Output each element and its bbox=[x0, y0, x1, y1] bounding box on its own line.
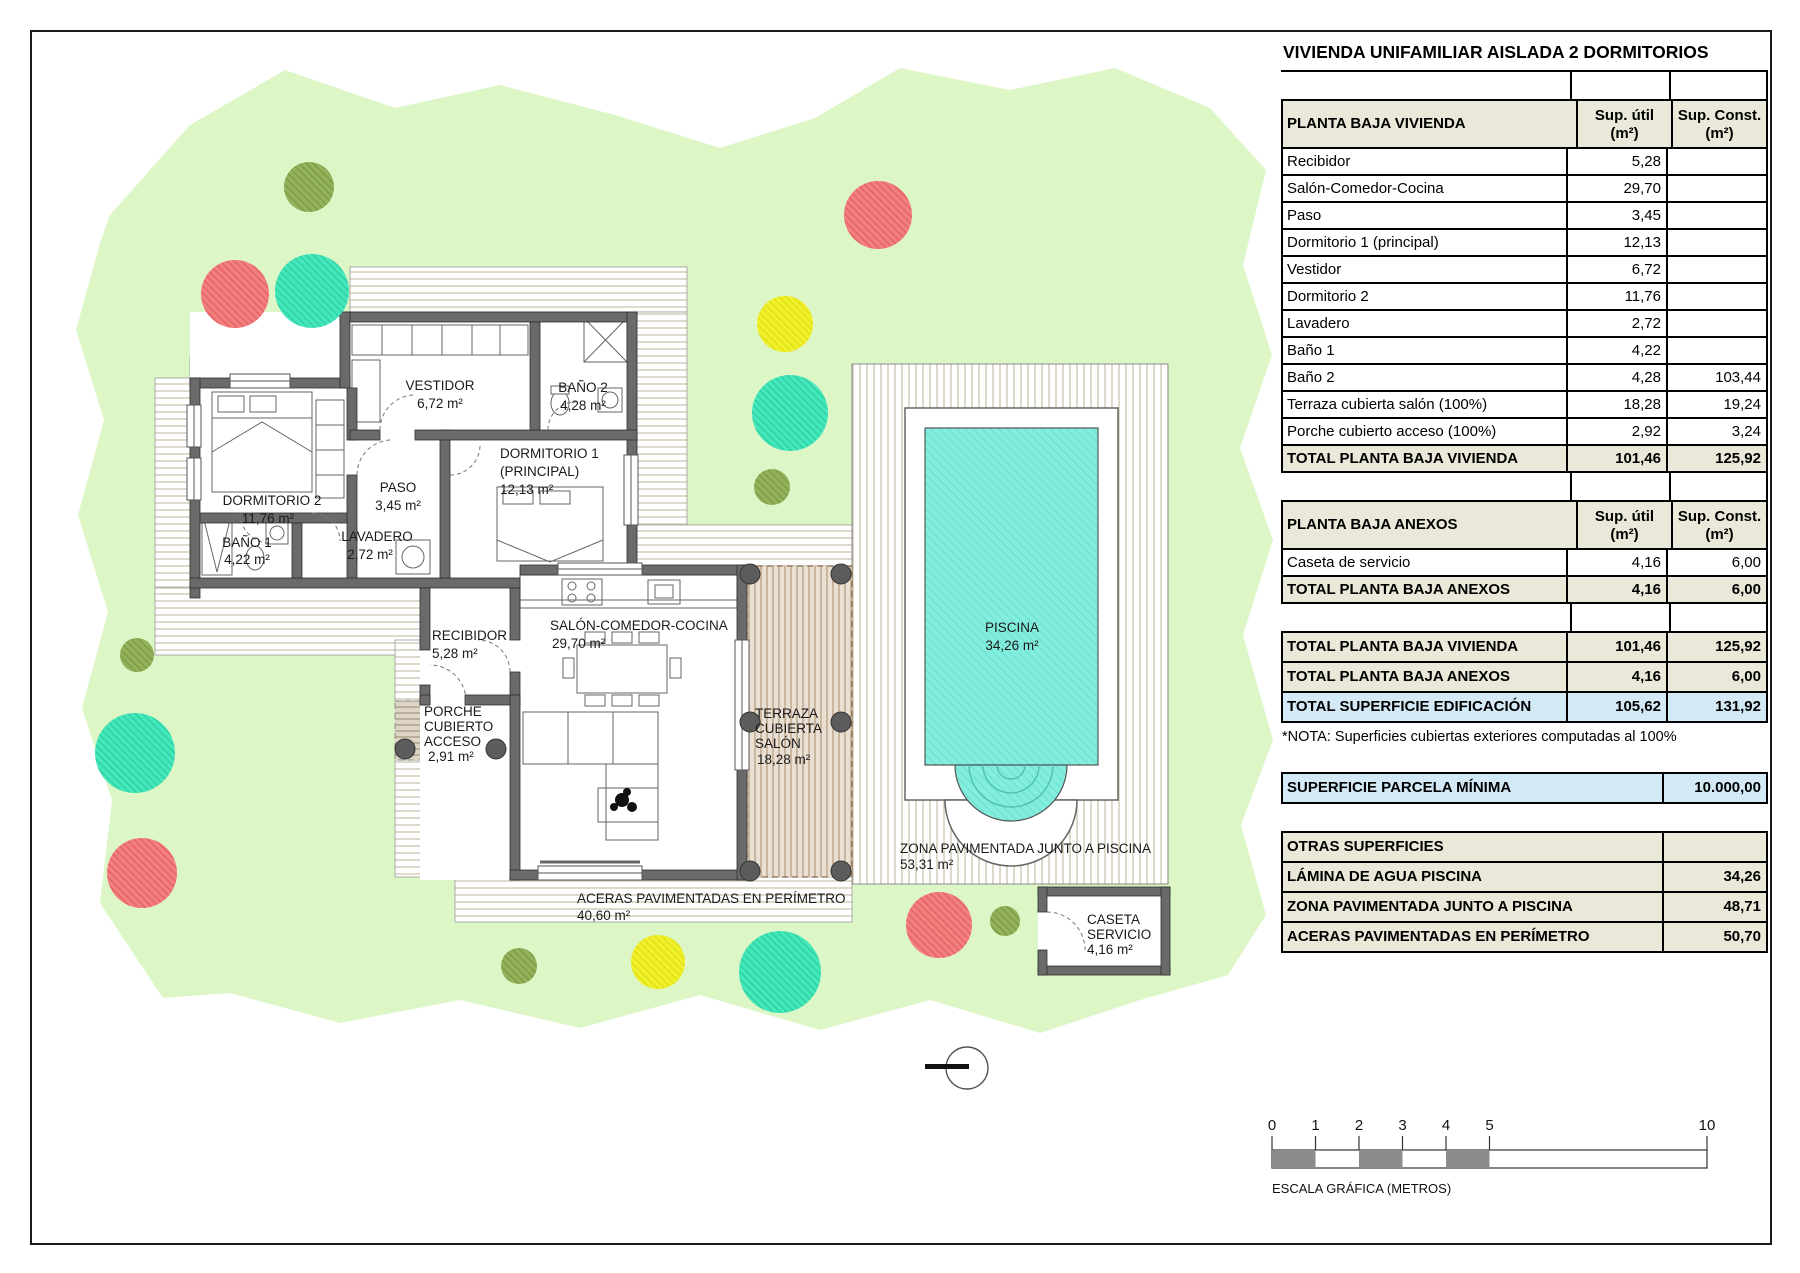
table-row: Dormitorio 211,76 bbox=[1283, 282, 1766, 309]
tree-olive bbox=[990, 906, 1020, 936]
label-dorm2-area: 11,76 m² bbox=[242, 511, 295, 526]
parcela-minima-label: SUPERFICIE PARCELA MÍNIMA bbox=[1283, 774, 1662, 802]
label-terrace-2: CUBIERTA bbox=[755, 721, 822, 736]
table-planta-baja-anexos: PLANTA BAJA ANEXOS Sup. útil(m²) Sup. Co… bbox=[1281, 500, 1768, 604]
label-paso: PASO bbox=[380, 480, 417, 495]
label-lavadero-area: 2,72 m² bbox=[347, 547, 393, 562]
label-dorm1-2: (PRINCIPAL) bbox=[500, 464, 579, 479]
label-vestidor-area: 6,72 m² bbox=[417, 396, 463, 411]
label-recibidor-area: 5,28 m² bbox=[432, 646, 478, 661]
label-aceras: ACERAS PAVIMENTADAS EN PERÍMETRO bbox=[577, 891, 846, 906]
label-dorm2: DORMITORIO 2 bbox=[223, 493, 322, 508]
table-row: Baño 24,28103,44 bbox=[1283, 363, 1766, 390]
dorm2-wardrobe bbox=[316, 400, 344, 498]
col-sup-const: Sup. Const.(m²) bbox=[1671, 101, 1766, 147]
tree-teal bbox=[739, 931, 821, 1013]
site-plan-sheet: { "title": "VIVIENDA UNIFAMILIAR AISLADA… bbox=[0, 0, 1800, 1273]
table-header-row: OTRAS SUPERFICIES bbox=[1283, 833, 1766, 861]
table-row: Terraza cubierta salón (100%)18,2819,24 bbox=[1283, 390, 1766, 417]
label-piscina: PISCINA bbox=[985, 620, 1039, 635]
pool-water bbox=[925, 428, 1098, 765]
spacer bbox=[1281, 72, 1768, 99]
tree-olive bbox=[120, 638, 154, 672]
label-bath2: BAÑO 2 bbox=[558, 380, 608, 395]
kitchen-counter bbox=[520, 575, 737, 608]
table-row: ACERAS PAVIMENTADAS EN PERÍMETRO50,70 bbox=[1283, 921, 1766, 951]
label-caseta-2: SERVICIO bbox=[1087, 927, 1151, 942]
table-header-row: PLANTA BAJA VIVIENDA Sup. útil(m²) Sup. … bbox=[1283, 101, 1766, 147]
tree-teal bbox=[275, 254, 349, 328]
label-porch: PORCHE bbox=[424, 704, 482, 719]
label-caseta-area: 4,16 m² bbox=[1087, 942, 1133, 957]
table-row: Porche cubierto acceso (100%)2,923,24 bbox=[1283, 417, 1766, 444]
washer-icon bbox=[396, 540, 430, 574]
label-piscina-area: 34,26 m² bbox=[985, 638, 1039, 653]
sheet-title: VIVIENDA UNIFAMILIAR AISLADA 2 DORMITORI… bbox=[1281, 36, 1768, 72]
scale-tick: 3 bbox=[1398, 1117, 1406, 1134]
tree-red bbox=[844, 181, 912, 249]
label-porch-2: CUBIERTO bbox=[424, 719, 493, 734]
table-totales: TOTAL PLANTA BAJA VIVIENDA101,46125,92 T… bbox=[1281, 631, 1768, 723]
tree-red bbox=[107, 838, 177, 908]
table-row: Recibidor5,28 bbox=[1283, 147, 1766, 174]
spacer bbox=[1281, 804, 1768, 831]
spacer bbox=[1281, 604, 1768, 631]
scale-tick: 4 bbox=[1442, 1117, 1450, 1134]
areas-panel: VIVIENDA UNIFAMILIAR AISLADA 2 DORMITORI… bbox=[1281, 36, 1768, 953]
tree-yellow bbox=[757, 296, 813, 352]
table-total-row: TOTAL PLANTA BAJA VIVIENDA101,46125,92 bbox=[1283, 633, 1766, 661]
table-row: LÁMINA DE AGUA PISCINA34,26 bbox=[1283, 861, 1766, 891]
scale-tick: 0 bbox=[1268, 1117, 1276, 1134]
table-total-row: TOTAL PLANTA BAJA ANEXOS4,166,00 bbox=[1283, 575, 1766, 602]
label-terrace: TERRAZA bbox=[755, 706, 818, 721]
label-dorm1: DORMITORIO 1 bbox=[500, 446, 599, 461]
table-row: ZONA PAVIMENTADA JUNTO A PISCINA48,71 bbox=[1283, 891, 1766, 921]
spacer bbox=[1281, 473, 1768, 500]
label-terrace-3: SALÓN bbox=[755, 736, 801, 751]
table-planta-baja-vivienda: PLANTA BAJA VIVIENDA Sup. útil(m²) Sup. … bbox=[1281, 99, 1768, 473]
label-porch-3: ACCESO bbox=[424, 734, 481, 749]
scale-tick: 10 bbox=[1699, 1117, 1716, 1134]
dorm1-bed bbox=[497, 487, 603, 562]
scale-bar: 0 1 2 3 4 5 10 ESCALA GRÁFICA (METROS) bbox=[1268, 1117, 1716, 1196]
label-salon: SALÓN-COMEDOR-COCINA bbox=[550, 618, 728, 633]
label-paso-area: 3,45 m² bbox=[375, 498, 421, 513]
table-row: Dormitorio 1 (principal)12,13 bbox=[1283, 228, 1766, 255]
table-header-label: PLANTA BAJA VIVIENDA bbox=[1283, 101, 1576, 147]
table-header-row: PLANTA BAJA ANEXOS Sup. útil(m²) Sup. Co… bbox=[1283, 502, 1766, 548]
scale-caption: ESCALA GRÁFICA (METROS) bbox=[1272, 1181, 1451, 1196]
label-vestidor: VESTIDOR bbox=[405, 378, 474, 393]
tree-teal bbox=[95, 713, 175, 793]
footnote: *NOTA: Superficies cubiertas exteriores … bbox=[1281, 723, 1768, 745]
table-row: Caseta de servicio4,166,00 bbox=[1283, 548, 1766, 575]
label-zona-pavimentada-area: 53,31 m² bbox=[900, 857, 954, 872]
col-sup-const: Sup. Const.(m²) bbox=[1671, 502, 1766, 548]
table-total-row: TOTAL PLANTA BAJA VIVIENDA101,46125,92 bbox=[1283, 444, 1766, 471]
label-aceras-area: 40,60 m² bbox=[577, 908, 631, 923]
tree-olive bbox=[754, 469, 790, 505]
tree-teal bbox=[752, 375, 828, 451]
label-zona-pavimentada: ZONA PAVIMENTADA JUNTO A PISCINA bbox=[900, 841, 1151, 856]
label-terrace-area: 18,28 m² bbox=[757, 752, 811, 767]
table-row: Baño 14,22 bbox=[1283, 336, 1766, 363]
table-row: Lavadero2,72 bbox=[1283, 309, 1766, 336]
tree-red bbox=[201, 260, 269, 328]
table-row: Paso3,45 bbox=[1283, 201, 1766, 228]
tree-red bbox=[906, 892, 972, 958]
table-row: Salón-Comedor-Cocina29,70 bbox=[1283, 174, 1766, 201]
col-sup-util: Sup. útil(m²) bbox=[1576, 101, 1671, 147]
tree-yellow bbox=[631, 935, 685, 989]
label-caseta: CASETA bbox=[1087, 912, 1140, 927]
tree-olive bbox=[501, 948, 537, 984]
parcela-minima-value: 10.000,00 bbox=[1662, 774, 1766, 802]
scale-tick: 1 bbox=[1311, 1117, 1319, 1134]
table-header-label: PLANTA BAJA ANEXOS bbox=[1283, 502, 1576, 548]
table-total-row: TOTAL PLANTA BAJA ANEXOS4,166,00 bbox=[1283, 661, 1766, 691]
label-lavadero: LAVADERO bbox=[341, 529, 413, 544]
label-dorm1-area: 12,13 m² bbox=[500, 482, 554, 497]
spacer bbox=[1281, 745, 1768, 772]
scale-tick: 5 bbox=[1485, 1117, 1493, 1134]
table-row: Vestidor6,72 bbox=[1283, 255, 1766, 282]
label-bath1: BAÑO 1 bbox=[222, 535, 272, 550]
label-recibidor: RECIBIDOR bbox=[432, 628, 507, 643]
table-grand-total-row: TOTAL SUPERFICIE EDIFICACIÓN105,62131,92 bbox=[1283, 691, 1766, 721]
dorm2-bed bbox=[212, 392, 312, 492]
label-bath2-area: 4,28 m² bbox=[560, 398, 606, 413]
scale-tick: 2 bbox=[1355, 1117, 1363, 1134]
label-porch-area: 2,91 m² bbox=[428, 749, 474, 764]
table-otras-superficies: OTRAS SUPERFICIES LÁMINA DE AGUA PISCINA… bbox=[1281, 831, 1768, 953]
parcela-minima-row: SUPERFICIE PARCELA MÍNIMA 10.000,00 bbox=[1281, 772, 1768, 804]
label-bath1-area: 4,22 m² bbox=[224, 552, 270, 567]
access-marker-icon bbox=[925, 1047, 988, 1089]
col-sup-util: Sup. útil(m²) bbox=[1576, 502, 1671, 548]
label-salon-area: 29,70 m² bbox=[552, 636, 606, 651]
tree-olive bbox=[284, 162, 334, 212]
